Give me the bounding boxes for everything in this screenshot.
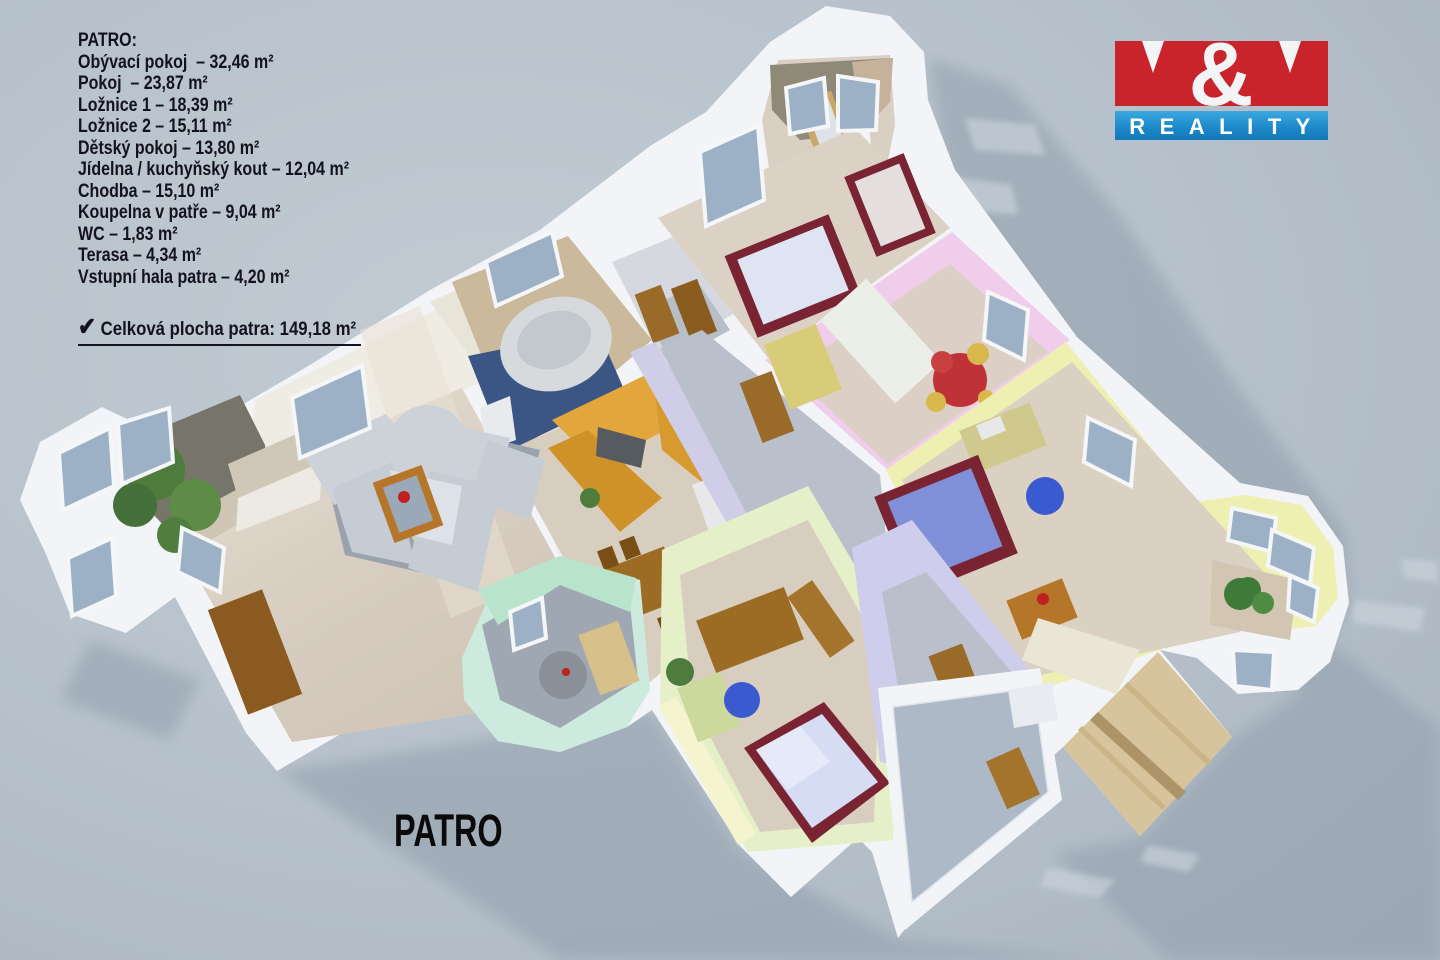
svg-text:&: & — [1189, 41, 1254, 125]
